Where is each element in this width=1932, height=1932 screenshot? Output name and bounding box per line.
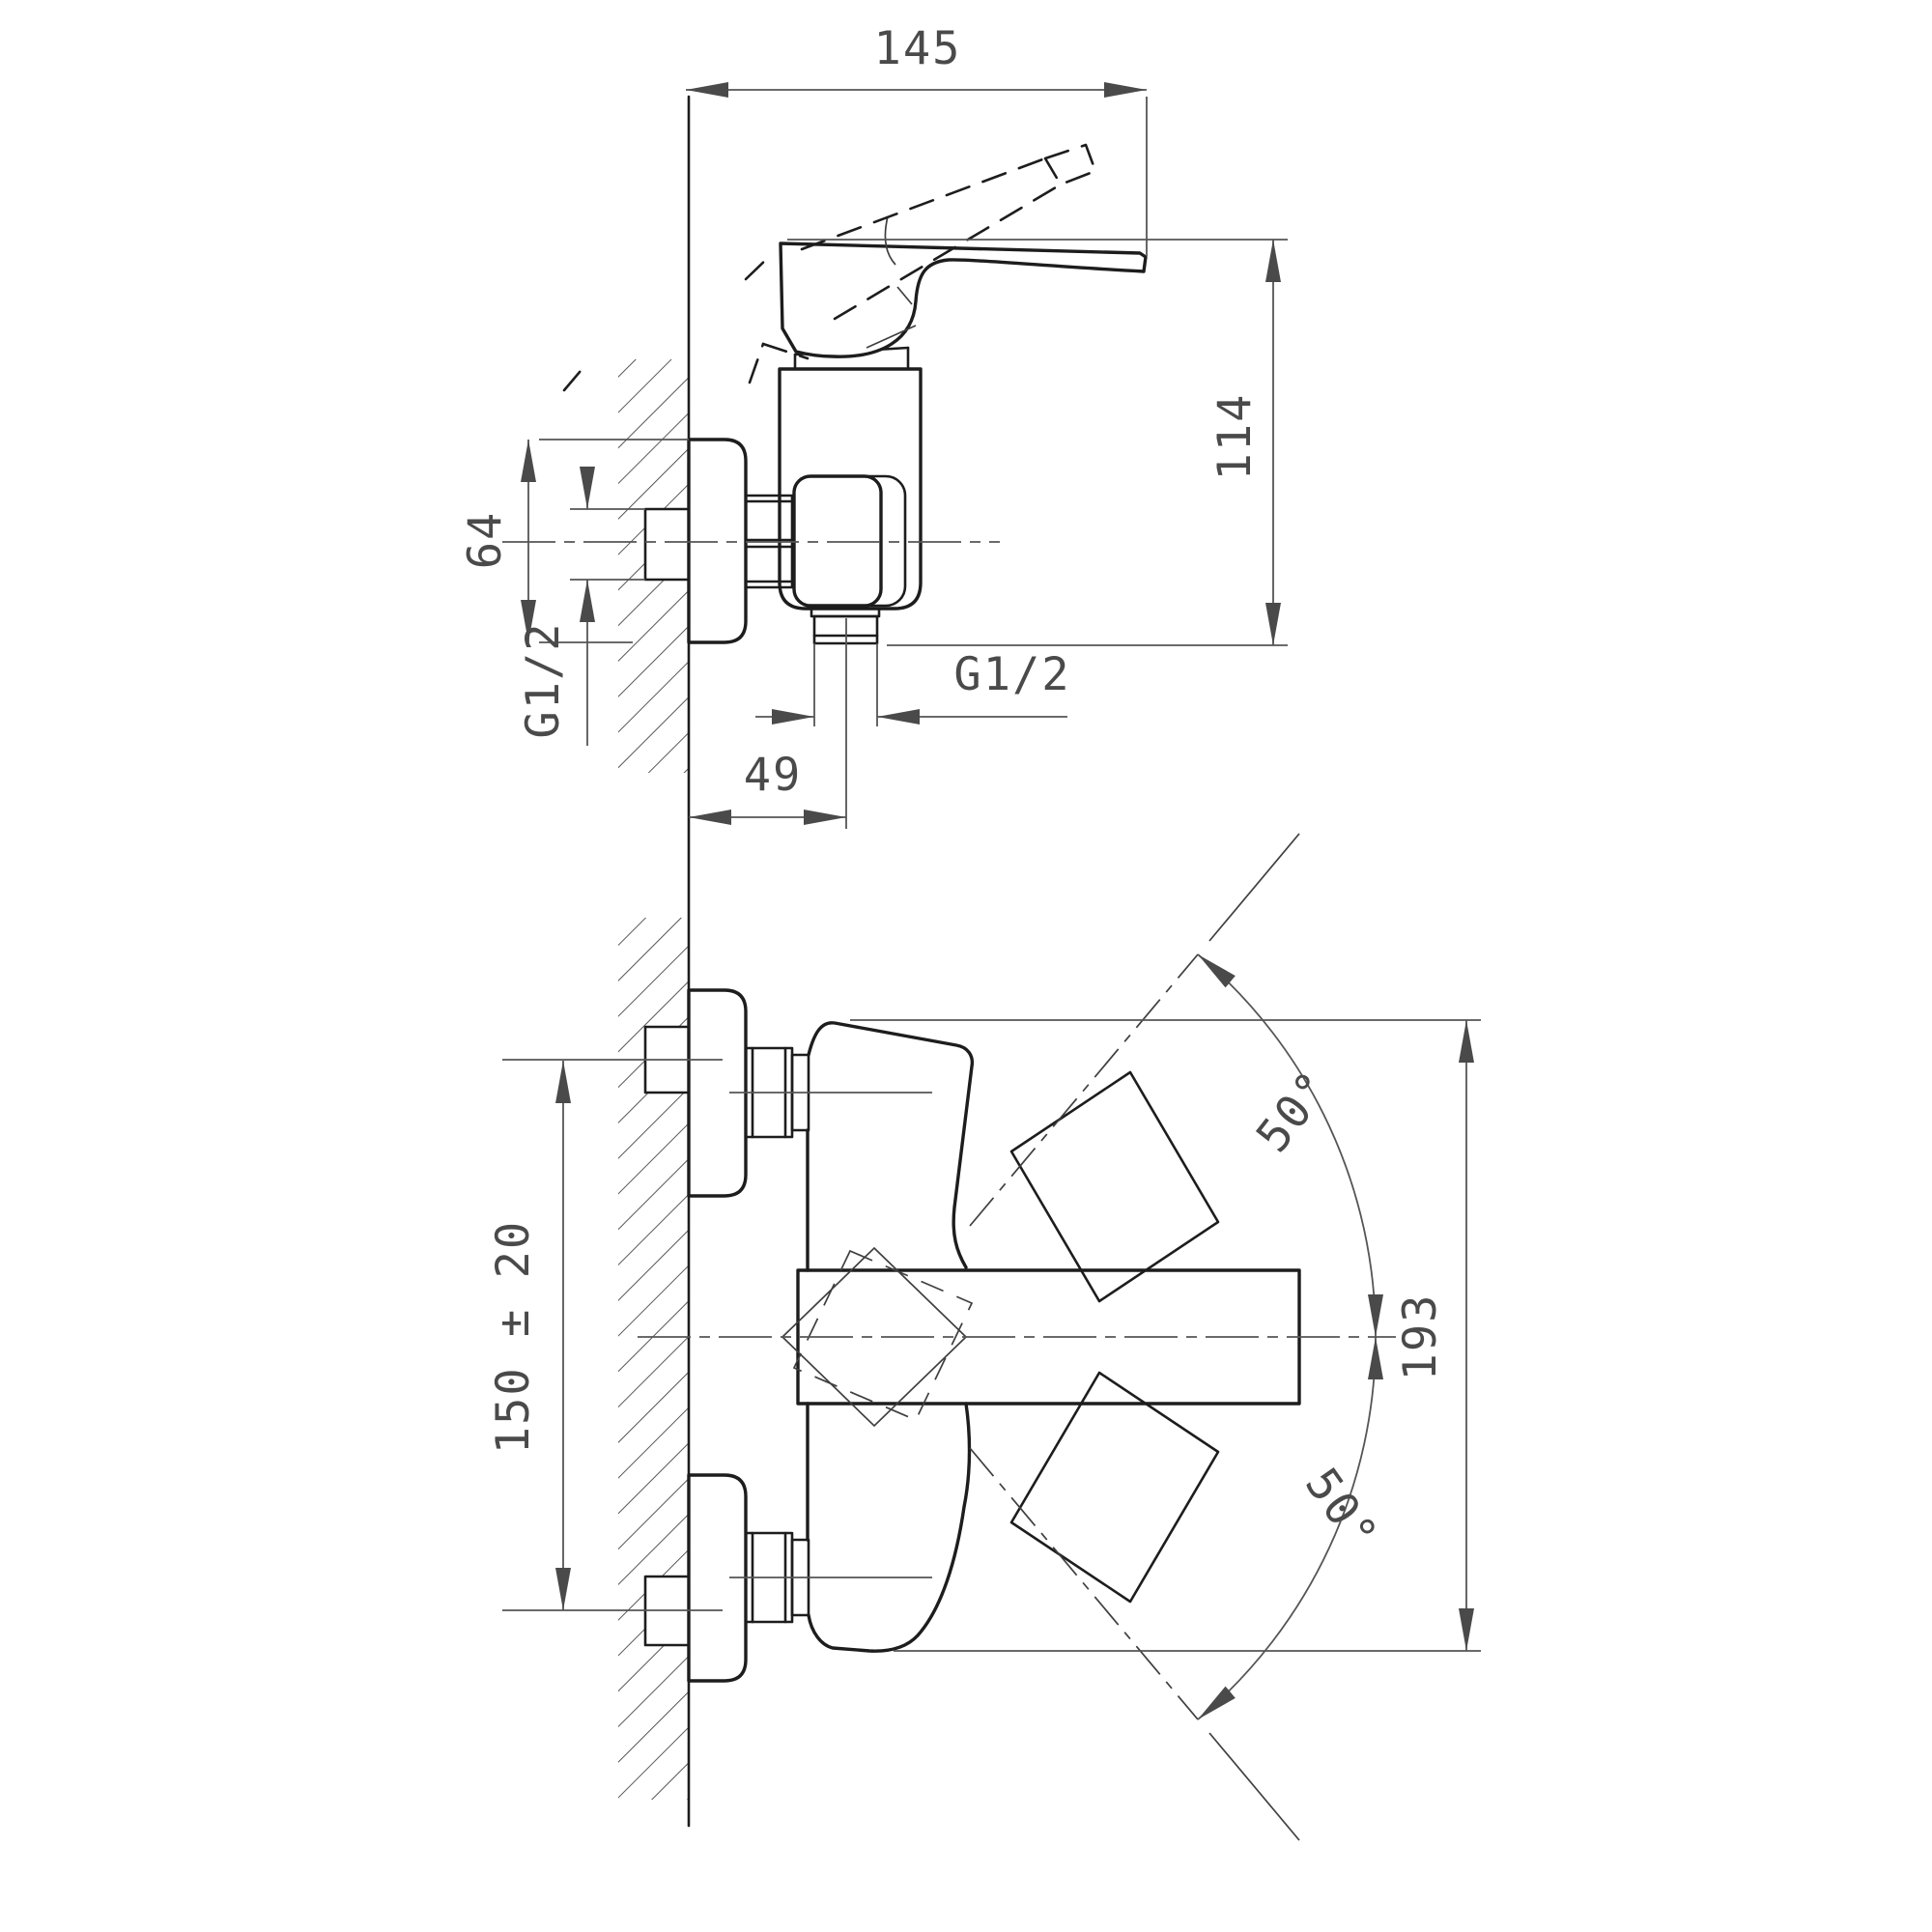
- dimension-angle-lower: 50°: [1193, 1337, 1388, 1725]
- dimension-angle-upper: 50°: [1193, 949, 1383, 1337]
- dimension-49-label: 49: [744, 749, 803, 802]
- dimension-g12-wall-label: G1/2: [517, 621, 570, 738]
- dimension-145: 145: [686, 22, 1147, 256]
- dimension-g12-outlet-label: G1/2: [953, 648, 1070, 701]
- dimension-193: 193: [850, 1020, 1481, 1651]
- valve-head-inner: [794, 476, 881, 606]
- dimension-150-label: 150 ± 20: [487, 1220, 540, 1454]
- escutcheon: [689, 440, 746, 642]
- handle-front-up-position: [1011, 1072, 1218, 1301]
- side-view: [502, 145, 1146, 643]
- shower-outlet: [811, 609, 879, 643]
- wall: [618, 97, 689, 1826]
- dimension-150: 150 ± 20: [487, 1061, 571, 1610]
- dimension-114-label: 114: [1208, 393, 1262, 481]
- dimension-angle-upper-label: 50°: [1246, 1061, 1342, 1162]
- pivot-diamond-dashed: [794, 1251, 972, 1420]
- dimension-g12-outlet: G1/2: [755, 643, 1071, 726]
- supply-union-in-wall: [645, 509, 689, 580]
- dimension-193-label: 193: [1394, 1293, 1447, 1381]
- lever-handle: [781, 243, 1146, 356]
- dimension-145-label: 145: [874, 22, 962, 75]
- dimension-angle-lower-label: 50°: [1294, 1459, 1388, 1561]
- dimension-49: 49: [689, 618, 846, 829]
- technical-drawing-canvas: 145 114 64 G1/2 G1/2: [0, 0, 1932, 1932]
- handle-front-down-position: [1011, 1373, 1218, 1602]
- dimension-64-label: 64: [459, 511, 512, 570]
